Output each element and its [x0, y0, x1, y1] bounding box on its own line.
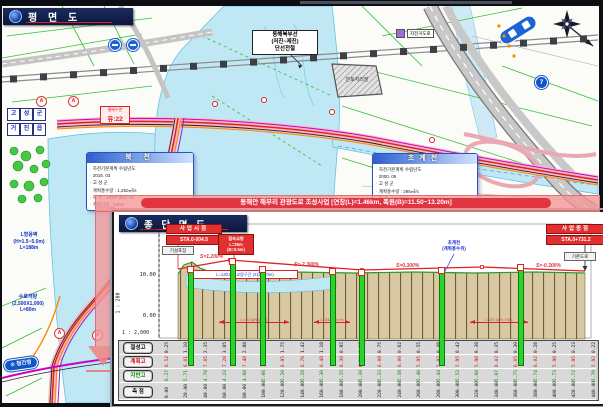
railway-label-line3: 단선전철: [253, 46, 317, 53]
boring-log-bar: [188, 272, 194, 366]
legend-item: 계획홍수량 : 1,250㎥/s: [90, 187, 190, 194]
railway-tie: [370, 50, 377, 57]
profile-panel: 종 단 면 도 20.00 10.00 0.00 1 : 2,000 1 : 2…: [112, 210, 603, 406]
railway-tie: [190, 63, 197, 70]
bike-path-label: 자전거도로: [396, 29, 434, 38]
sta-start-callout: 사업시점 STA.0-004.5: [166, 224, 222, 245]
railway-tie: [160, 65, 167, 72]
slope-label-1: S=1.200%: [200, 254, 223, 260]
table-row-station: 측 점 0.0020.0040.0060.0080.00100.00120.00…: [119, 383, 596, 400]
table-cell-value: 5.98: [475, 356, 480, 367]
screenshot-root: { "plan": { "title": "평 면 도", "banner_te…: [0, 0, 603, 407]
vertical-scale: 1 : 200: [116, 292, 122, 313]
table-cell-value: 5.06: [262, 370, 267, 381]
table-cell-value: 220.00: [378, 381, 383, 398]
row-values-design-elev: 6.526.817.057.287.487.216.956.706.486.30…: [159, 355, 596, 368]
slope-label-2: S=-2.300%: [294, 262, 319, 268]
railway-tie: [130, 67, 137, 74]
table-cell-value: 60.00: [223, 384, 228, 398]
sta-start-title: 사업시점: [166, 224, 222, 234]
table-cell-value: 5.44: [437, 370, 442, 381]
table-cell-value: 5.74: [534, 370, 539, 381]
slope-label-3: S=0.300%: [396, 263, 419, 269]
table-cell-value: 5.71: [184, 370, 189, 381]
route-7-shield: 7: [535, 76, 548, 89]
table-cell-value: 80.00: [243, 384, 248, 398]
map-symbol-grid: 고 성 군 거 진 읍: [7, 108, 44, 136]
table-cell-value: 40.00: [204, 384, 209, 398]
railway-tie: [220, 61, 227, 68]
map-symbol: 거: [7, 123, 20, 136]
table-cell-value: 7.05: [204, 356, 209, 367]
legend-item: 2000. 05: [376, 173, 474, 180]
boring-log-bar: [439, 273, 445, 366]
project-banner: 동해안 해무리 관광도로 조성사업 [연장(L)=1.46km, 폭원(B)=1…: [95, 195, 600, 212]
table-cell-value: 6.00: [398, 356, 403, 367]
legend-item: 하천기본계획 수립년도: [376, 166, 474, 173]
table-cell-value: 5.98: [553, 356, 558, 367]
table-cell-value: 340.00: [495, 381, 500, 398]
table-cell-value: 0.38: [475, 342, 480, 353]
table-cell-value: 420.00: [572, 381, 577, 398]
sta-end-value: STA.0+731.2: [546, 235, 603, 245]
legend-item: 하천기본계획 수립년도: [90, 165, 190, 172]
legend-bukcheon-title: 북 천: [87, 153, 193, 163]
railway-tie: [580, 35, 587, 42]
railway-tie: [310, 54, 317, 61]
bridge-note-strip: L=120.0m 교량구간 (2@60.0m): [192, 270, 298, 279]
map-symbol: 성: [20, 108, 33, 121]
table-cell-value: 400.00: [553, 381, 558, 398]
elev-tick-20: 20.00: [134, 227, 156, 233]
table-cell-value: 1.42: [301, 342, 306, 353]
table-cell-value: 0.23: [572, 342, 577, 353]
row-label-design-elev: 계획고: [123, 356, 153, 368]
culvert-id: 유:22: [101, 113, 129, 123]
table-cell-value: 5.30: [320, 370, 325, 381]
table-cell-value: 4.23: [223, 370, 228, 381]
railway-tie: [490, 42, 497, 49]
boring-log-bar: [518, 270, 524, 366]
bike-path-text: 자전거도로: [407, 29, 434, 38]
boring-log-cap: [438, 267, 445, 274]
culvert-callout: 횡배수관 유:22: [100, 106, 130, 124]
row-values-station: 0.0020.0040.0060.0080.00100.00120.00140.…: [159, 383, 596, 399]
railway-tie: [10, 75, 17, 82]
section-pointer-baseline: [86, 370, 112, 372]
table-cell-value: 320.00: [475, 381, 480, 398]
table-cell-value: 6.27: [165, 370, 170, 381]
table-cell-value: 0.35: [495, 342, 500, 353]
railway-tie: [400, 48, 407, 55]
railway-tie: [430, 46, 437, 53]
table-cell-value: 100.00: [262, 381, 267, 398]
boring-log-cap: [517, 264, 524, 271]
table-cell-value: 7.28: [223, 356, 228, 367]
table-cell-value: 6.08: [378, 356, 383, 367]
table-cell-value: 0.25: [165, 342, 170, 353]
railway-tie: [460, 44, 467, 51]
sta-start-value: STA.0-004.5: [166, 235, 222, 245]
table-cell-value: 5.92: [592, 356, 597, 367]
water-level-label: 초계천 (계획홍수위): [432, 240, 476, 252]
railway-label-line1: 동해북부선: [253, 32, 317, 39]
table-cell-value: 5.95: [417, 356, 422, 367]
table-cell-value: 440.00: [592, 381, 597, 398]
legend-item: 2016. 03: [90, 172, 190, 179]
row-label-ground-elev: 지반고: [123, 370, 153, 382]
railway-tie: [340, 52, 347, 59]
table-cell-value: 5.67: [495, 370, 500, 381]
pavement-right-label: 기존도로: [564, 252, 596, 261]
table-cell-value: 5.33: [378, 370, 383, 381]
boring-log-bar: [330, 274, 336, 366]
survey-marker-a: A: [54, 328, 65, 339]
table-cell-value: 5.73: [553, 370, 558, 381]
map-symbol: 고: [7, 108, 20, 121]
sta-end-title: 사업종점: [546, 224, 603, 234]
table-cell-value: 6.02: [534, 356, 539, 367]
table-cell-value: 260.00: [417, 381, 422, 398]
survey-marker-a: A: [36, 96, 47, 107]
legend-item: 고 성 군: [90, 179, 190, 186]
legend-item: 고 성 군: [376, 180, 474, 187]
table-cell-value: 5.35: [340, 370, 345, 381]
bridge-callout: 접속교량 L=35m (B=9.5m): [218, 234, 254, 255]
table-cell-value: 20.00: [184, 384, 189, 398]
table-cell-value: 5.95: [572, 356, 577, 367]
lwall-label: L형옹벽 (H=1.5~5.0m) L=188m: [8, 232, 50, 252]
table-cell-value: 140.00: [301, 381, 306, 398]
elev-tick-0: 0.00: [134, 313, 156, 319]
row-values-cutfill: 0.251.102.353.052.882.151.751.421.180.95…: [159, 341, 596, 354]
table-cell-value: 2.35: [204, 342, 209, 353]
table-cell-value: 5.60: [475, 370, 480, 381]
map-symbol: 진: [20, 123, 33, 136]
railway-tie: [250, 59, 257, 66]
table-cell-value: 380.00: [534, 381, 539, 398]
table-cell-value: 0.22: [592, 342, 597, 353]
table-cell-value: 6.30: [340, 356, 345, 367]
slope-label-4: S=-0.300%: [536, 263, 561, 269]
table-cell-value: 300.00: [456, 381, 461, 398]
table-cell-value: 6.02: [495, 356, 500, 367]
water-gauge-icon: [109, 39, 121, 51]
table-cell-value: 3.05: [223, 342, 228, 353]
table-cell-value: 5.28: [301, 370, 306, 381]
table-cell-value: 0.25: [553, 342, 558, 353]
table-cell-value: 6.48: [320, 356, 325, 367]
table-cell-value: 0.95: [340, 342, 345, 353]
drawing-title-icon: [9, 10, 22, 23]
table-cell-value: 0.28: [534, 342, 539, 353]
boring-log-cap: [229, 258, 236, 265]
map-symbol: 읍: [33, 123, 46, 136]
bike-path-icon: [396, 29, 405, 38]
profile-canvas: 종 단 면 도 20.00 10.00 0.00 1 : 2,000 1 : 2…: [114, 212, 603, 404]
horizontal-scale: 1 : 2,000: [122, 330, 149, 336]
pavement-left-label: 기설포장: [162, 246, 194, 255]
table-cell-value: 200.00: [359, 381, 364, 398]
table-cell-value: 7.48: [243, 356, 248, 367]
table-cell-value: 4.60: [243, 370, 248, 381]
table-cell-value: 2.88: [243, 342, 248, 353]
railway-tie: [70, 71, 77, 78]
boring-log-cap: [329, 268, 336, 275]
spoil-area-label: 잔토처리장: [336, 76, 378, 83]
table-cell-value: 0.55: [417, 342, 422, 353]
table-cell-value: 5.70: [592, 370, 597, 381]
table-cell-value: 280.00: [437, 381, 442, 398]
table-cell-value: 120.00: [281, 381, 286, 398]
table-cell-value: 360.00: [514, 381, 519, 398]
table-cell-value: 0.42: [456, 342, 461, 353]
railway-tie: [550, 38, 557, 45]
boring-log-cap: [358, 269, 365, 276]
plan-title-underline: [26, 22, 112, 23]
table-cell-value: 0.00: [165, 387, 170, 398]
table-cell-value: 0.75: [378, 342, 383, 353]
table-cell-value: 5.40: [417, 370, 422, 381]
boring-log-bar: [359, 275, 365, 366]
table-cell-value: 160.00: [320, 381, 325, 398]
waterway-line3: L=80m: [5, 307, 51, 314]
row-label-cutfill: 절성고: [123, 342, 153, 354]
survey-marker-a: A: [68, 96, 79, 107]
table-cell-value: 240.00: [398, 381, 403, 398]
table-cell-value: 5.72: [572, 370, 577, 381]
railway-tie: [520, 40, 527, 47]
table-cell-value: 0.62: [398, 342, 403, 353]
table-cell-value: 5.75: [514, 370, 519, 381]
table-cell-value: 6.70: [301, 356, 306, 367]
railway-label-line2: (저진~제진): [253, 39, 317, 46]
table-cell-value: 4.70: [204, 370, 209, 381]
elev-tick-10: 10.00: [134, 272, 156, 278]
boring-log-cap: [259, 266, 266, 273]
table-cell-value: 5.30: [359, 370, 364, 381]
railway-label: 동해북부선 (저진~제진) 단선전철: [252, 30, 318, 55]
lwall-line3: L=188m: [8, 245, 50, 252]
boring-log-bar: [260, 272, 266, 366]
sta-end-callout: 사업종점 STA.0+731.2: [546, 224, 603, 245]
boring-log-bar: [230, 264, 236, 366]
window-top-strip: [300, 1, 512, 4]
bridge-width: (B=9.5m): [219, 247, 253, 253]
railway-tie: [40, 73, 47, 80]
table-cell-value: 5.38: [398, 370, 403, 381]
table-cell-value: 180.00: [340, 381, 345, 398]
table-cell-value: 1.18: [320, 342, 325, 353]
boring-log-cap: [187, 266, 194, 273]
table-row-ground-elev: 지반고 6.275.714.704.234.605.065.205.285.30…: [119, 369, 596, 383]
table-cell-value: 6.52: [165, 356, 170, 367]
table-cell-value: 1.75: [281, 342, 286, 353]
table-cell-value: 5.95: [456, 356, 461, 367]
row-label-station: 측 점: [123, 386, 153, 398]
map-symbol: 군: [33, 108, 46, 121]
table-cell-value: 5.53: [456, 370, 461, 381]
railway-tie: [100, 69, 107, 76]
table-cell-value: 6.95: [281, 356, 286, 367]
project-banner-text: 동해안 해무리 관광도로 조성사업 [연장(L)=1.46km, 폭원(B)=1…: [141, 198, 551, 208]
table-cell-value: 5.20: [281, 370, 286, 381]
railway-tie: [280, 56, 287, 63]
legend-chogyecheon-title: 초계천: [373, 154, 477, 164]
waterway-label: 수로개량 (2,500X1,000) L=80m: [5, 294, 51, 314]
legend-item: 계획홍수량 : 295㎥/s: [376, 188, 474, 195]
water-level-line2: (계획홍수위): [432, 246, 476, 252]
water-gauge-icon: [127, 39, 139, 51]
